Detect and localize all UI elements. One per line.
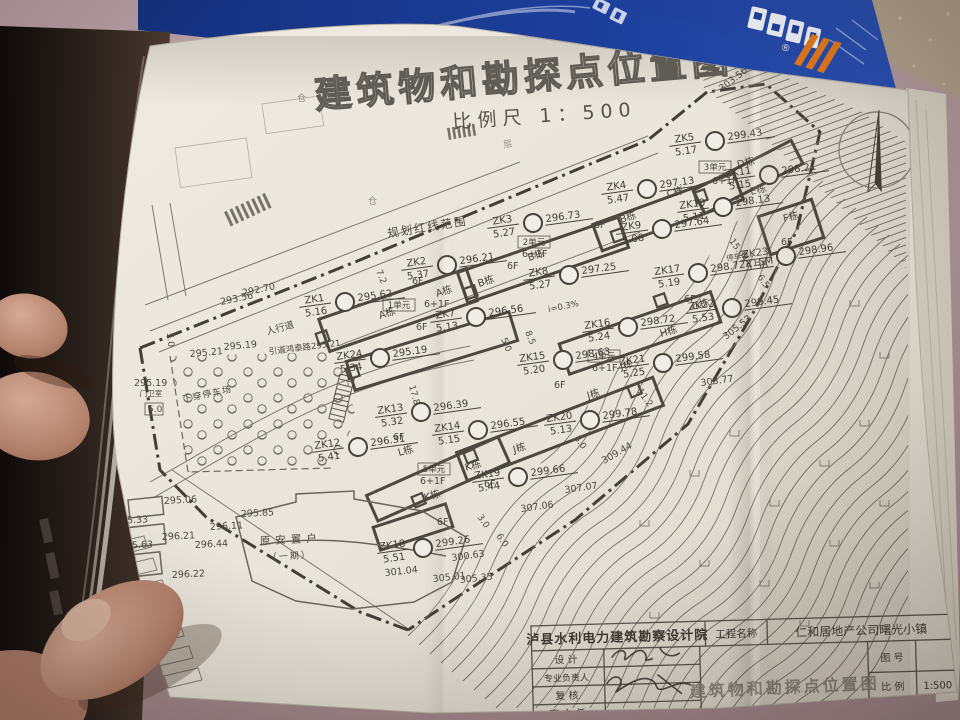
photo-of-site-plan: ® bbox=[0, 0, 960, 720]
photo-vignette bbox=[0, 0, 960, 720]
